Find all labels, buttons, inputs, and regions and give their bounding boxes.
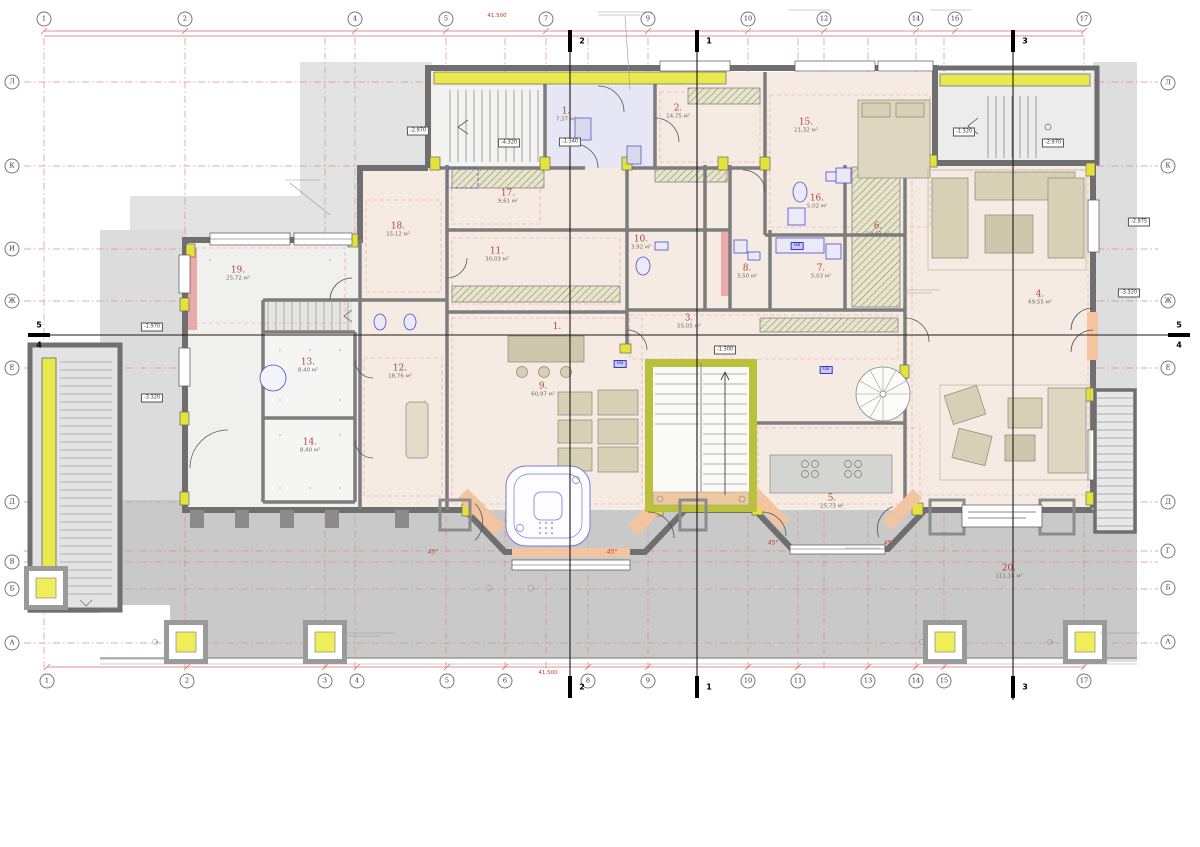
- grid-bubble-bottom-3: 3: [318, 674, 333, 689]
- grid-bubble-left-Е: Е: [5, 361, 20, 376]
- grid-bubble-right-К: К: [1161, 159, 1176, 174]
- section-flag-bar: [695, 30, 699, 52]
- grid-bubble-right-Д: Д: [1161, 495, 1176, 510]
- grid-bubble-left-В: В: [5, 555, 20, 570]
- section-flag-bar: [695, 676, 699, 698]
- grid-bubble-bottom-10: 10: [741, 674, 756, 689]
- grid-bubble-top-12: 12: [817, 12, 832, 27]
- grid-bubble-bottom-13: 13: [861, 674, 876, 689]
- section-flag-label: 5: [36, 321, 42, 330]
- grid-bubble-right-Е: Е: [1161, 361, 1176, 376]
- section-flag-bar: [1011, 30, 1015, 52]
- floor-plan-drawing: 1. 41.500 41.500 1.7,37 м²2.14,75 м²3.55…: [0, 0, 1200, 847]
- vent-shaft-label: ОВ: [820, 366, 833, 374]
- elevation-mark: -2.970: [1042, 139, 1064, 148]
- note-box: [962, 505, 1042, 527]
- stair-right-exterior: [1095, 390, 1135, 532]
- bay-angle-label: 45°: [768, 540, 779, 547]
- floor-plan-svg: [0, 0, 1200, 847]
- grid-bubble-right-Г: Г: [1161, 544, 1176, 559]
- grid-bubble-right-А: А: [1161, 635, 1176, 650]
- section-flag-bar: [568, 30, 572, 52]
- elevation-mark: -1.970: [141, 323, 163, 332]
- section-flag-label: 3: [1022, 37, 1028, 46]
- elevation-mark: -1.320: [953, 128, 975, 137]
- elevation-mark: -3.320: [1118, 289, 1140, 298]
- stair-main-core: [649, 363, 753, 508]
- grid-bubble-left-Д: Д: [5, 495, 20, 510]
- grid-bubble-right-Б: Б: [1161, 581, 1176, 596]
- grid-bubble-left-Л: Л: [5, 75, 20, 90]
- elevation-mark: -2.975: [1128, 218, 1150, 227]
- grid-bubble-bottom-14: 14: [909, 674, 924, 689]
- elevation-mark: -3.320: [141, 394, 163, 403]
- grid-bubble-bottom-9: 9: [641, 674, 656, 689]
- grid-bubble-top-17: 17: [1077, 12, 1092, 27]
- grid-bubble-left-Ж: Ж: [5, 294, 20, 309]
- grid-bubble-top-10: 10: [741, 12, 756, 27]
- vent-shaft-label: ОВ: [791, 242, 804, 250]
- elevation-mark: -1.300: [714, 346, 736, 355]
- bay-angle-label: 45°: [607, 549, 618, 556]
- grid-bubble-top-4: 4: [348, 12, 363, 27]
- section-flag-label: 1: [706, 37, 712, 46]
- grid-bubble-top-2: 2: [178, 12, 193, 27]
- section-flag-label: 5: [1176, 321, 1182, 330]
- bay-angle-label: 45°: [884, 540, 895, 547]
- grid-bubble-left-А: А: [5, 636, 20, 651]
- dim-total-bottom: 41.500: [538, 670, 557, 676]
- grid-bubble-top-9: 9: [641, 12, 656, 27]
- grid-bubble-bottom-4: 4: [350, 674, 365, 689]
- grid-bubble-bottom-1: 1: [40, 674, 55, 689]
- section-flag-label: 2: [579, 683, 585, 692]
- grid-bubble-bottom-2: 2: [180, 674, 195, 689]
- grid-bubble-bottom-6: 6: [498, 674, 513, 689]
- dim-total-top: 41.500: [487, 13, 506, 19]
- grid-bubble-left-К: К: [5, 159, 20, 174]
- vent-shaft-label: ОВ: [614, 360, 627, 368]
- grid-bubble-bottom-5: 5: [440, 674, 455, 689]
- grid-bubble-right-Л: Л: [1161, 76, 1176, 91]
- bay-angle-label: 45°: [428, 549, 439, 556]
- grid-bubble-left-Б: Б: [5, 582, 20, 597]
- elevation-mark: -1.340: [559, 138, 581, 147]
- section-flag-bar: [28, 333, 50, 337]
- grid-bubble-top-7: 7: [539, 12, 554, 27]
- elevation-mark: -2.970: [407, 127, 429, 136]
- section-flag-label: 4: [36, 341, 42, 350]
- grid-bubble-bottom-11: 11: [791, 674, 806, 689]
- grid-bubble-top-1: 1: [37, 12, 52, 27]
- section-flag-bar: [568, 676, 572, 698]
- grid-bubble-top-14: 14: [909, 12, 924, 27]
- grid-bubble-top-16: 16: [948, 12, 963, 27]
- section-flag-label: 3: [1022, 683, 1028, 692]
- grid-bubble-left-И: И: [5, 242, 20, 257]
- jacuzzi: [506, 466, 590, 546]
- section-flag-bar: [1168, 333, 1190, 337]
- grid-bubble-right-Ж: Ж: [1161, 294, 1176, 309]
- grid-bubble-top-5: 5: [439, 12, 454, 27]
- section-flag-label: 2: [579, 37, 585, 46]
- section-flag-label: 1: [706, 683, 712, 692]
- section-flag-label: 4: [1176, 341, 1182, 350]
- grid-bubble-bottom-17: 17: [1077, 674, 1092, 689]
- stair-spiral: [856, 367, 910, 421]
- grid-bubble-bottom-15: 15: [937, 674, 952, 689]
- section-flag-bar: [1011, 676, 1015, 698]
- elevation-mark: -4.320: [498, 139, 520, 148]
